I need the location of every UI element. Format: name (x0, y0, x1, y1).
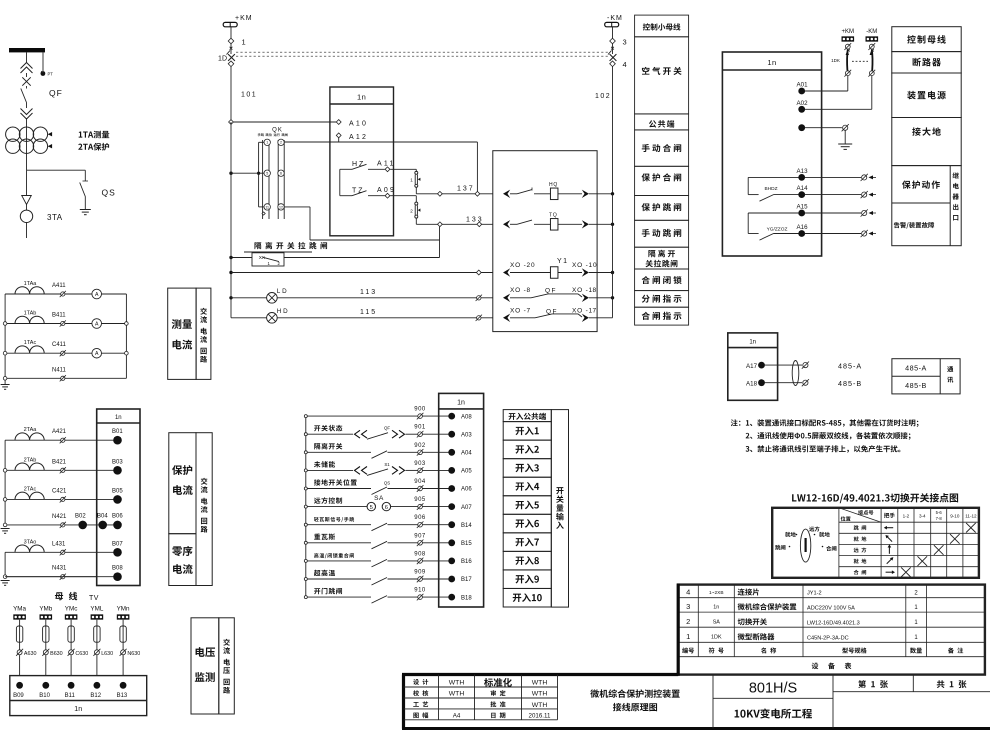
svg-text:4: 4 (686, 587, 690, 596)
svg-text:115: 115 (360, 309, 377, 316)
svg-text:N630: N630 (127, 651, 140, 657)
svg-text:N411: N411 (52, 367, 67, 373)
svg-text:B04: B04 (97, 514, 108, 520)
svg-text:YMc: YMc (65, 606, 78, 613)
svg-text:B08: B08 (112, 566, 123, 572)
svg-text:B09: B09 (13, 693, 24, 699)
svg-text:903: 903 (414, 461, 426, 467)
svg-text:904: 904 (414, 479, 426, 485)
svg-text:QF: QF (546, 309, 558, 316)
svg-text:1DK: 1DK (711, 635, 722, 641)
svg-text:B11: B11 (65, 693, 76, 699)
svg-text:1D: 1D (218, 56, 227, 63)
svg-text:102: 102 (595, 93, 611, 100)
svg-text:B03: B03 (112, 459, 123, 465)
svg-text:N421: N421 (52, 514, 67, 520)
svg-text:1n: 1n (357, 93, 366, 102)
svg-text:6: 6 (385, 505, 388, 511)
svg-text:B15: B15 (461, 541, 472, 547)
svg-text:C45N-2P-3A-DC: C45N-2P-3A-DC (807, 635, 849, 641)
svg-text:LW12-16D/49.4021.3: LW12-16D/49.4021.3 (807, 620, 860, 626)
svg-text:TQ: TQ (549, 213, 558, 219)
svg-text:B12: B12 (90, 693, 101, 699)
svg-text:1: 1 (914, 620, 918, 626)
svg-text:2TAb: 2TAb (24, 457, 37, 463)
svg-text:B17: B17 (461, 577, 472, 583)
svg-text:1n: 1n (457, 400, 465, 407)
svg-text:B01: B01 (112, 429, 123, 435)
svg-text:3: 3 (686, 602, 690, 611)
svg-text:A04: A04 (461, 451, 472, 457)
svg-text:907: 907 (414, 533, 426, 539)
svg-text:485-A: 485-A (905, 364, 927, 373)
svg-text:YML: YML (90, 606, 103, 613)
svg-text:B05: B05 (112, 488, 123, 494)
svg-text:HD: HD (277, 308, 290, 315)
svg-text:A: A (95, 292, 99, 298)
svg-text:133: 133 (466, 216, 484, 223)
svg-text:C630: C630 (75, 651, 88, 657)
svg-text:2: 2 (410, 208, 413, 213)
svg-text:+KM: +KM (235, 15, 253, 22)
svg-text:A08: A08 (461, 414, 472, 420)
svg-text:1n: 1n (713, 605, 719, 611)
svg-text:C421: C421 (52, 488, 67, 494)
svg-text:QS: QS (384, 481, 390, 486)
svg-text:N431: N431 (52, 566, 67, 572)
svg-text:QF: QF (545, 288, 557, 295)
svg-text:1TAb: 1TAb (24, 311, 37, 317)
svg-text:12: 12 (279, 205, 283, 209)
svg-text:QF: QF (384, 426, 390, 431)
svg-text:5: 5 (370, 505, 373, 511)
svg-text:YMn: YMn (117, 606, 130, 613)
svg-text:A17: A17 (746, 363, 758, 370)
svg-text:7: 7 (593, 307, 597, 314)
svg-text:A11: A11 (377, 161, 396, 168)
svg-text:7-8: 7-8 (936, 516, 943, 521)
svg-text:9-10: 9-10 (950, 514, 960, 519)
svg-text:L431: L431 (52, 541, 66, 547)
svg-text:A09: A09 (377, 187, 396, 194)
svg-text:A18: A18 (746, 381, 758, 388)
svg-text:TV: TV (89, 595, 99, 602)
svg-text:XO -1: XO -1 (572, 287, 593, 294)
svg-text:WTH: WTH (532, 679, 548, 686)
svg-text:2016.11: 2016.11 (529, 713, 551, 720)
svg-text:JY1-2: JY1-2 (807, 591, 822, 597)
svg-text:910: 910 (414, 588, 426, 594)
svg-text:XO -8: XO -8 (510, 287, 531, 294)
svg-text:11: 11 (265, 205, 269, 209)
svg-text:2: 2 (686, 617, 690, 626)
svg-text:3TA: 3TA (47, 213, 63, 222)
svg-text:A01: A01 (797, 82, 809, 89)
svg-text:B02: B02 (75, 514, 86, 520)
svg-text:WTH: WTH (532, 691, 548, 698)
svg-text:XO -10: XO -10 (572, 262, 597, 269)
svg-text:-KM: -KM (607, 15, 623, 22)
svg-text:B10: B10 (39, 693, 50, 699)
svg-text:HZ: HZ (352, 161, 365, 168)
svg-text:A05: A05 (461, 469, 472, 475)
svg-text:S1: S1 (384, 462, 390, 467)
svg-text:801H/S: 801H/S (749, 681, 797, 697)
svg-text:902: 902 (414, 443, 426, 449)
svg-text:11-12: 11-12 (965, 514, 977, 519)
svg-text:901: 901 (414, 425, 426, 431)
svg-text:A4: A4 (453, 713, 461, 720)
svg-text:8: 8 (593, 287, 597, 294)
svg-text:1n: 1n (749, 340, 756, 346)
svg-text:A: A (95, 322, 99, 328)
svg-text:C411: C411 (52, 342, 67, 348)
svg-text:3: 3 (623, 38, 627, 47)
svg-text:1-2: 1-2 (903, 514, 910, 519)
svg-text:485-B: 485-B (838, 379, 862, 388)
svg-text:WTH: WTH (449, 679, 465, 686)
svg-text:113: 113 (360, 289, 377, 296)
svg-text:A10: A10 (349, 121, 368, 128)
svg-text:SA: SA (374, 495, 384, 502)
svg-text:A: A (95, 351, 99, 357)
svg-text:1: 1 (242, 38, 246, 47)
svg-text:1n: 1n (74, 706, 82, 713)
svg-text:485-A: 485-A (838, 362, 862, 371)
svg-text:A630: A630 (24, 651, 37, 657)
svg-text:5: 5 (266, 172, 268, 176)
svg-text:1TAc: 1TAc (24, 340, 37, 346)
svg-text:WTH: WTH (532, 702, 548, 709)
svg-text:1: 1 (686, 632, 690, 641)
svg-text:YMb: YMb (39, 606, 52, 613)
svg-text:ADC220V 100V 5A: ADC220V 100V 5A (807, 605, 855, 611)
svg-text:+KM: +KM (842, 29, 855, 35)
svg-text:B14: B14 (461, 523, 472, 529)
svg-text:B07: B07 (112, 541, 123, 547)
svg-text:HQ: HQ (549, 182, 558, 188)
svg-text:B18: B18 (461, 595, 472, 601)
svg-text:XO -20: XO -20 (510, 262, 535, 269)
svg-text:2TAa: 2TAa (24, 427, 38, 433)
svg-text:B421: B421 (52, 459, 67, 465)
svg-text:YMa: YMa (13, 606, 26, 613)
svg-text:A07: A07 (461, 505, 472, 511)
svg-text:1: 1 (268, 261, 271, 266)
svg-text:B411: B411 (52, 313, 66, 319)
svg-text:1: 1 (410, 178, 413, 183)
svg-text:5-6: 5-6 (936, 510, 943, 515)
svg-text:A12: A12 (349, 134, 368, 141)
svg-text:909: 909 (414, 570, 426, 576)
svg-text:1TAa: 1TAa (24, 281, 38, 287)
svg-text:A411: A411 (52, 283, 66, 289)
svg-text:WTH: WTH (449, 691, 465, 698)
svg-text:B16: B16 (461, 559, 472, 565)
svg-text:1n: 1n (115, 415, 122, 421)
svg-text:A421: A421 (52, 429, 67, 435)
svg-text:6: 6 (280, 172, 282, 176)
svg-text:1: 1 (914, 635, 918, 641)
svg-text:3-4: 3-4 (919, 514, 926, 519)
svg-text:XO -7: XO -7 (510, 307, 531, 314)
svg-text:2: 2 (278, 261, 281, 266)
svg-text:B630: B630 (50, 651, 63, 657)
svg-text:-KM: -KM (866, 29, 877, 35)
svg-text:A14: A14 (797, 185, 809, 192)
svg-text:900: 900 (414, 407, 426, 413)
svg-text:LD: LD (277, 288, 289, 295)
svg-text:QS: QS (102, 188, 116, 198)
svg-text:L630: L630 (101, 651, 113, 657)
svg-text:1: 1 (266, 141, 268, 145)
svg-text:905: 905 (414, 497, 426, 503)
svg-text:Y1: Y1 (557, 258, 569, 265)
svg-text:485-B: 485-B (905, 381, 927, 390)
svg-text:QF: QF (49, 88, 63, 98)
svg-text:4: 4 (623, 60, 627, 69)
svg-text:2: 2 (280, 141, 282, 145)
svg-text:2: 2 (914, 590, 918, 596)
svg-text:A16: A16 (797, 224, 809, 231)
svg-text:SA: SA (713, 620, 721, 626)
svg-text:908: 908 (414, 551, 426, 557)
svg-text:101: 101 (241, 92, 257, 99)
svg-text:A06: A06 (461, 487, 472, 493)
svg-text:2TAc: 2TAc (24, 486, 37, 492)
svg-text:1: 1 (914, 605, 918, 611)
svg-text:XO -1: XO -1 (572, 307, 593, 314)
svg-text:A03: A03 (461, 432, 472, 438)
svg-text:137: 137 (457, 186, 475, 193)
svg-text:A13: A13 (797, 168, 809, 175)
svg-text:906: 906 (414, 515, 426, 521)
svg-text:YG/ZZOZ: YG/ZZOZ (767, 226, 788, 232)
svg-text:PT: PT (48, 72, 54, 77)
svg-text:B13: B13 (117, 693, 128, 699)
svg-text:1~2XB: 1~2XB (709, 590, 724, 596)
svg-text:TZ: TZ (352, 187, 365, 194)
svg-text:BHDZ: BHDZ (764, 186, 777, 192)
svg-text:3TAo: 3TAo (24, 539, 37, 545)
svg-text:1DK: 1DK (831, 58, 841, 63)
svg-text:QK: QK (272, 128, 283, 134)
svg-text:A15: A15 (797, 204, 809, 211)
svg-text:A02: A02 (797, 100, 809, 107)
svg-text:B06: B06 (112, 514, 123, 520)
svg-text:1n: 1n (767, 58, 776, 67)
